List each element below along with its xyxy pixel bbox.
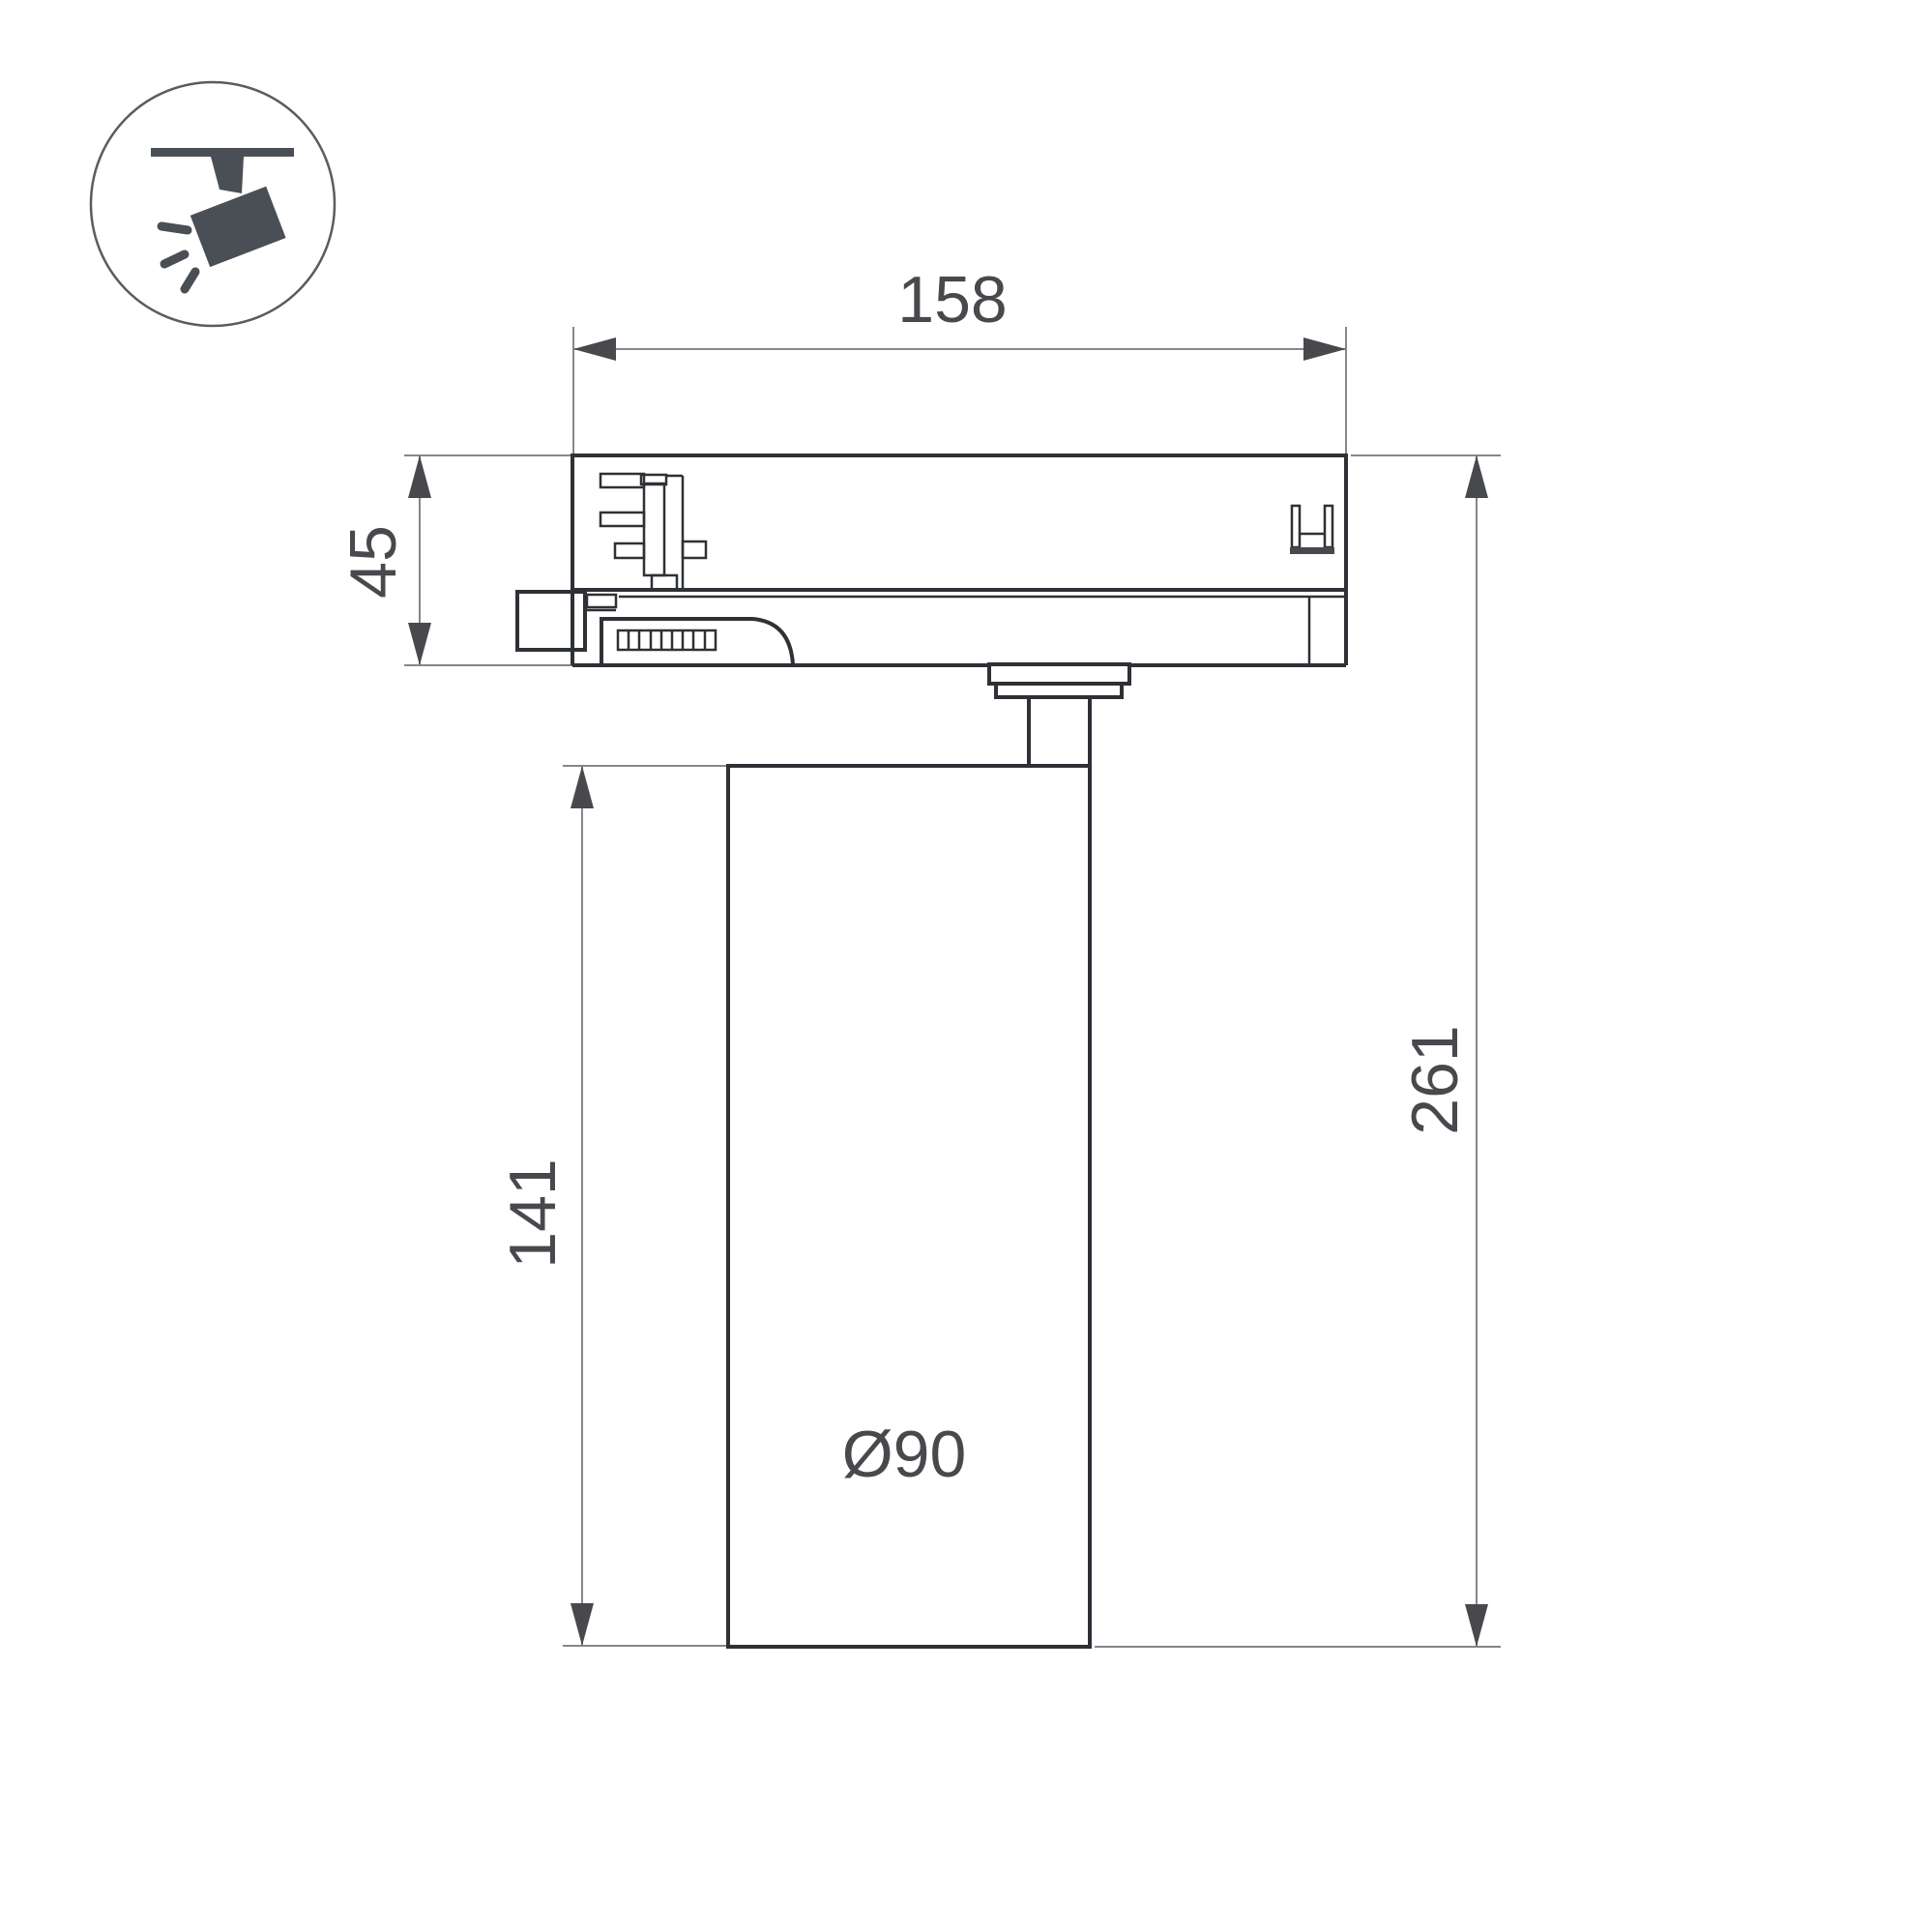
adapter-upper-box <box>572 455 1346 590</box>
dim-label-adapter-height: 45 <box>337 525 410 599</box>
lamp-body <box>728 766 1090 1647</box>
dim-label-total-height: 261 <box>1398 1025 1472 1134</box>
adapter-lock-lever <box>601 619 793 664</box>
track-adapter <box>517 455 1346 665</box>
mount-stem <box>989 664 1129 766</box>
adapter-latch-slot <box>587 595 616 607</box>
dim-label-adapter-width: 158 <box>897 263 1007 337</box>
adapter-latch <box>517 592 585 650</box>
technical-drawing: 158 45 141 261 Ø90 <box>0 0 1932 1932</box>
icon-circle <box>91 82 335 326</box>
track-spotlight-icon <box>91 82 335 326</box>
dim-label-body-height: 141 <box>496 1158 570 1268</box>
icon-ceiling-track <box>151 148 294 157</box>
dim-label-body-diameter: Ø90 <box>842 1418 967 1491</box>
icon-light-ray <box>161 226 188 230</box>
